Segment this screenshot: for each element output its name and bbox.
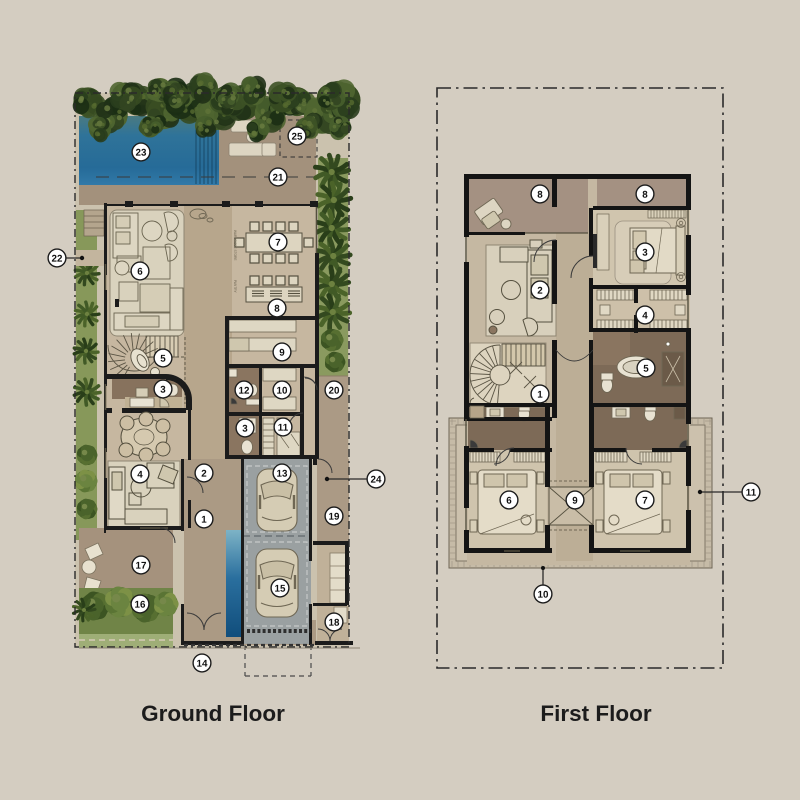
svg-text:11: 11 <box>278 423 289 434</box>
svg-text:4: 4 <box>137 470 143 481</box>
svg-text:11: 11 <box>746 488 757 499</box>
svg-text:WARDROBE STORE: WARDROBE STORE <box>233 230 237 260</box>
svg-text:8: 8 <box>274 304 280 315</box>
svg-text:10: 10 <box>538 590 549 601</box>
svg-text:12: 12 <box>239 386 250 397</box>
svg-text:3: 3 <box>642 248 648 259</box>
svg-text:8: 8 <box>642 190 648 201</box>
svg-text:24: 24 <box>371 475 382 486</box>
svg-text:19: 19 <box>329 512 340 523</box>
svg-text:1: 1 <box>201 515 207 526</box>
svg-text:7: 7 <box>642 496 648 507</box>
svg-text:7: 7 <box>275 238 281 249</box>
svg-text:10: 10 <box>277 386 288 397</box>
svg-text:16: 16 <box>135 600 146 611</box>
svg-text:25: 25 <box>292 132 303 143</box>
svg-text:4: 4 <box>642 311 648 322</box>
svg-text:6: 6 <box>137 267 143 278</box>
svg-text:PANTRY: PANTRY <box>233 280 237 294</box>
svg-text:2: 2 <box>201 469 207 480</box>
svg-text:First Floor: First Floor <box>540 701 651 726</box>
svg-text:17: 17 <box>136 561 147 572</box>
svg-text:5: 5 <box>160 354 166 365</box>
svg-text:23: 23 <box>136 148 147 159</box>
svg-text:22: 22 <box>52 254 63 265</box>
svg-text:1: 1 <box>537 390 543 401</box>
svg-text:9: 9 <box>572 496 578 507</box>
svg-text:8: 8 <box>537 190 543 201</box>
svg-text:3: 3 <box>160 385 166 396</box>
svg-text:21: 21 <box>273 173 284 184</box>
svg-text:15: 15 <box>275 584 286 595</box>
svg-text:20: 20 <box>329 386 340 397</box>
svg-text:2: 2 <box>537 286 543 297</box>
svg-text:3: 3 <box>242 424 248 435</box>
svg-text:13: 13 <box>277 469 288 480</box>
svg-text:6: 6 <box>506 496 512 507</box>
svg-text:9: 9 <box>279 348 285 359</box>
svg-text:18: 18 <box>329 618 340 629</box>
svg-text:14: 14 <box>197 659 208 670</box>
svg-text:5: 5 <box>643 364 649 375</box>
svg-text:Ground Floor: Ground Floor <box>141 701 285 726</box>
